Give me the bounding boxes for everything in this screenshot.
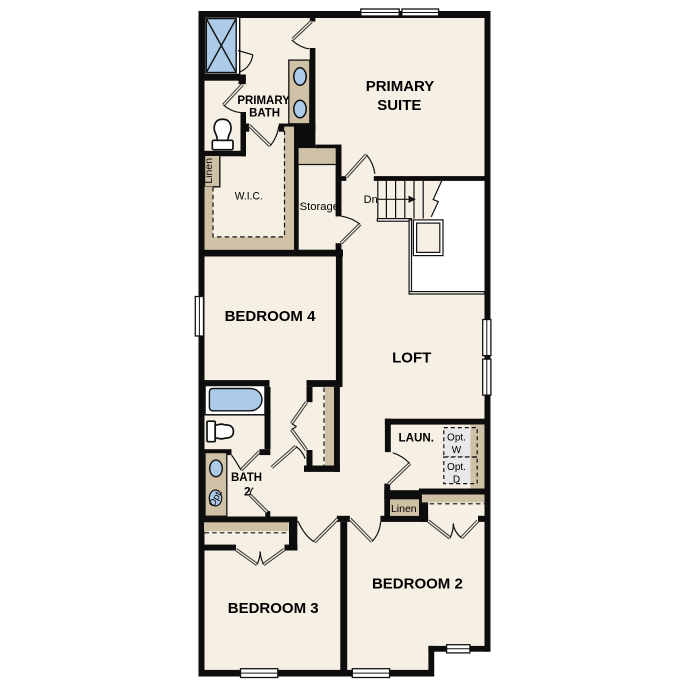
svg-text:BEDROOM 4: BEDROOM 4	[225, 308, 317, 325]
svg-text:BATH: BATH	[249, 106, 280, 120]
svg-text:BEDROOM 2: BEDROOM 2	[372, 575, 463, 592]
svg-text:Opt.: Opt.	[447, 462, 466, 473]
svg-text:Dn: Dn	[364, 194, 378, 206]
svg-text:BATH: BATH	[231, 470, 262, 484]
svg-text:D: D	[453, 475, 460, 486]
svg-text:Linen: Linen	[391, 503, 417, 515]
svg-text:Storage: Storage	[300, 201, 339, 213]
svg-text:W: W	[452, 445, 462, 456]
svg-text:SUITE: SUITE	[377, 97, 421, 114]
svg-text:Opt.: Opt.	[447, 432, 466, 443]
svg-text:BEDROOM 3: BEDROOM 3	[228, 600, 319, 617]
svg-text:Linen: Linen	[203, 158, 215, 184]
svg-text:LAUN.: LAUN.	[399, 430, 435, 444]
svg-text:W.I.C.: W.I.C.	[235, 190, 263, 202]
svg-text:PRIMARY: PRIMARY	[366, 78, 435, 95]
svg-text:LOFT: LOFT	[392, 350, 431, 367]
